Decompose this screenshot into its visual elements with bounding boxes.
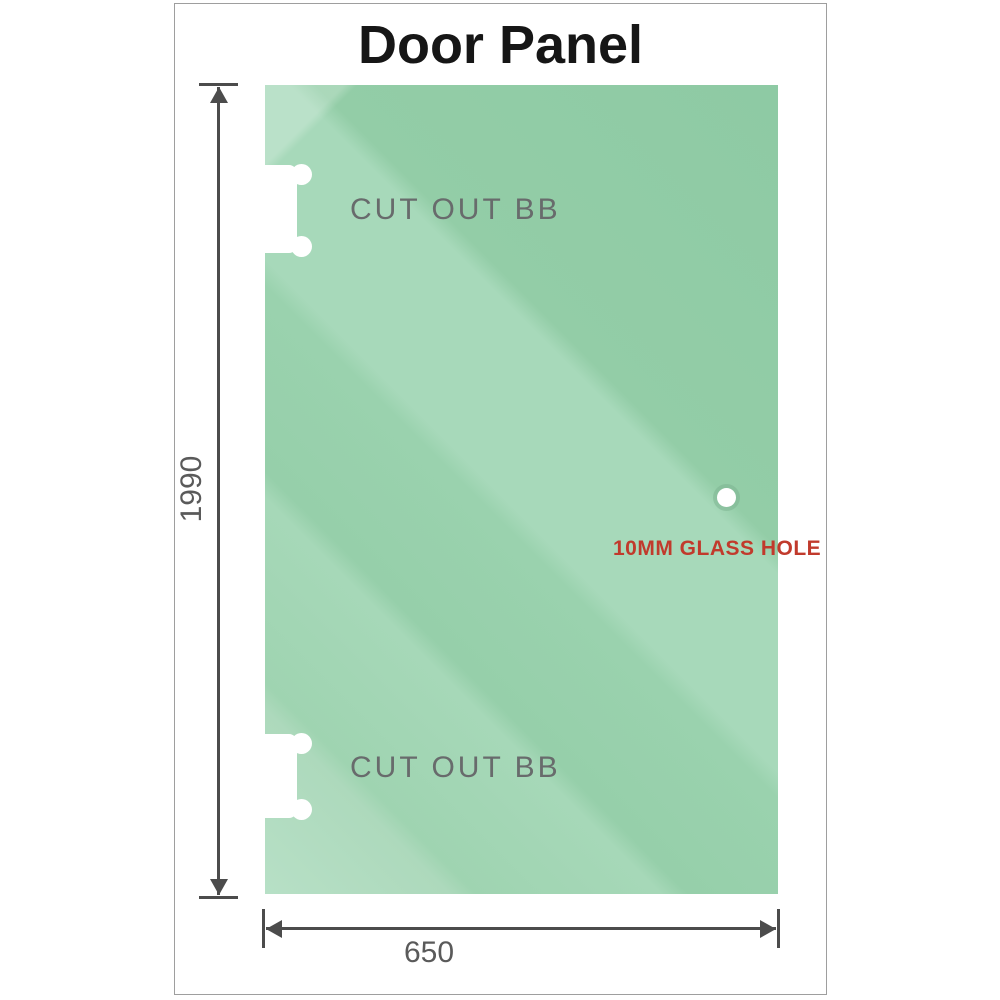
arrow-right-icon xyxy=(760,920,776,938)
dimension-cap-bottom xyxy=(199,896,238,899)
glass-panel: CUT OUT BB CUT OUT BB 10MM GLASS HOLE xyxy=(265,85,778,894)
width-dimension xyxy=(262,909,780,948)
dimension-cap-right xyxy=(777,909,780,948)
dimension-cap-top xyxy=(199,83,238,86)
cutout-bottom-label: CUT OUT BB xyxy=(350,751,561,785)
dimension-line-horizontal xyxy=(266,927,776,930)
dimension-line-vertical xyxy=(217,87,220,895)
door-panel-diagram: Door Panel 1990 CUT OUT BB CUT OUT BB 10… xyxy=(0,0,1000,1000)
height-dimension-label: 1990 xyxy=(175,409,209,569)
arrow-left-icon xyxy=(266,920,282,938)
cutout-bump xyxy=(291,164,312,185)
cutout-top-label: CUT OUT BB xyxy=(350,193,561,227)
cutout-bump xyxy=(291,799,312,820)
cutout-bump xyxy=(291,733,312,754)
dimension-cap-left xyxy=(262,909,265,948)
cutout-bump xyxy=(291,236,312,257)
arrow-up-icon xyxy=(210,87,228,103)
width-dimension-label: 650 xyxy=(349,936,509,970)
arrow-down-icon xyxy=(210,879,228,895)
diagram-title: Door Panel xyxy=(174,14,827,76)
glass-hole-icon xyxy=(717,488,736,507)
